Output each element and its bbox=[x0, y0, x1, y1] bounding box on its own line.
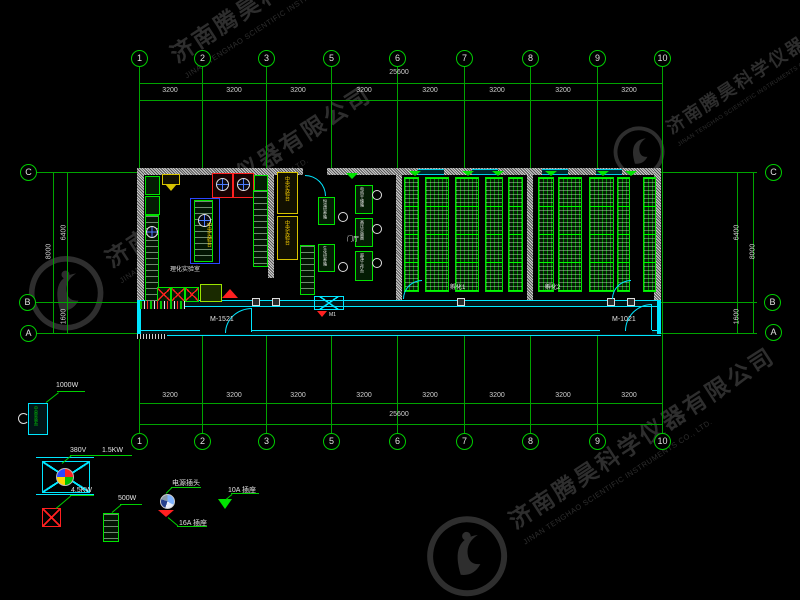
grid-bubble-top-5: 5 bbox=[323, 50, 340, 67]
door-arc bbox=[612, 280, 631, 299]
legend-c-clip-icon bbox=[18, 413, 29, 424]
room-label-hall: 门厅 bbox=[347, 234, 359, 243]
leader-line bbox=[57, 391, 85, 392]
dim-bay: 3200 bbox=[416, 87, 444, 94]
wall-right-lower bbox=[657, 300, 661, 334]
equipment-label: 生化培养箱 bbox=[323, 246, 327, 268]
lab-cabinet bbox=[145, 196, 160, 215]
door-leaf bbox=[251, 308, 252, 332]
equipment-label: 电热干燥箱 bbox=[360, 187, 364, 210]
cable-tray bbox=[140, 301, 185, 309]
exhaust-fan-icon bbox=[165, 184, 177, 191]
grid-bubble-top-8: 8 bbox=[522, 50, 539, 67]
watermark-top-right: 济南腾昊科学仪器有限公司 JINAN TENGHAO SCIENTIFIC IN… bbox=[601, 0, 800, 190]
wall-partition-rooms bbox=[527, 175, 533, 300]
room-label-hatch2: 孵化2 bbox=[545, 282, 560, 291]
dim-total-bottom: 25600 bbox=[379, 411, 419, 418]
lab-side-bench bbox=[253, 190, 268, 267]
door-label-m1521: M-1521 bbox=[210, 316, 234, 323]
door-label-m1: M1 bbox=[329, 312, 336, 318]
grid-bubble-bottom-8: 8 bbox=[522, 433, 539, 450]
dim-bay: 3200 bbox=[483, 87, 511, 94]
lab-equipment-box bbox=[157, 287, 171, 302]
legend-rack-symbol bbox=[103, 513, 119, 542]
dim-side-upper: 6400 bbox=[734, 218, 741, 248]
dim-bay: 3200 bbox=[350, 392, 378, 399]
column-marker bbox=[252, 298, 260, 306]
legend-socket16-label: 16A 插座 bbox=[179, 518, 207, 528]
incubator-rack bbox=[508, 177, 523, 292]
equipment-label: 恒温培养箱 bbox=[323, 199, 327, 221]
incubator-rack bbox=[455, 177, 479, 292]
dim-bay: 3200 bbox=[284, 392, 312, 399]
stool bbox=[372, 258, 382, 268]
grid-bubble-top-9: 9 bbox=[589, 50, 606, 67]
grid-bubble-bottom-2: 2 bbox=[194, 433, 211, 450]
grid-bubble-top-3: 3 bbox=[258, 50, 275, 67]
leader-line bbox=[120, 504, 142, 505]
leader-line bbox=[70, 455, 132, 456]
equipment-label: 超净工作台 bbox=[360, 253, 364, 277]
legend-plug-ball-icon bbox=[160, 494, 175, 509]
legend-socket16-icon bbox=[158, 510, 174, 517]
dim-line bbox=[139, 403, 662, 404]
dim-bay: 3200 bbox=[156, 392, 184, 399]
incubator-rack bbox=[404, 177, 419, 292]
incubator-rack bbox=[643, 177, 656, 292]
dim-side-total: 8000 bbox=[46, 237, 53, 267]
equipment-label: 高压灭菌器 bbox=[360, 220, 364, 243]
title-tick-strip bbox=[137, 334, 167, 339]
dim-bay: 3200 bbox=[615, 87, 643, 94]
incubator-rack bbox=[589, 177, 614, 292]
lab-cabinet bbox=[145, 176, 160, 195]
stool bbox=[372, 190, 382, 200]
central-bench-label: 中央实验台 bbox=[284, 176, 289, 208]
lab-machine bbox=[200, 284, 222, 302]
column-marker bbox=[627, 298, 635, 306]
legend-motor-icon bbox=[56, 468, 74, 486]
red-cone bbox=[222, 289, 238, 298]
room-label-lab: 理化实验室 bbox=[170, 264, 200, 273]
fan-icon bbox=[237, 178, 250, 191]
dim-side-total: 8000 bbox=[750, 237, 757, 267]
grid-bubble-top-7: 7 bbox=[456, 50, 473, 67]
dim-total-top: 25600 bbox=[379, 69, 419, 76]
stool bbox=[372, 224, 382, 234]
lab-equipment-box bbox=[185, 287, 199, 302]
central-bench-label: 中央实验台 bbox=[206, 222, 211, 260]
watermark-bottom-right: 济南腾昊科学仪器有限公司 JINAN TENGHAO SCIENTIFIC IN… bbox=[408, 320, 799, 600]
vestibule-door bbox=[314, 296, 344, 310]
grid-bubble-left-B: B bbox=[19, 294, 36, 311]
vent-icon bbox=[409, 171, 421, 176]
incubator-rack bbox=[617, 177, 630, 292]
grid-bubble-top-2: 2 bbox=[194, 50, 211, 67]
column-marker bbox=[272, 298, 280, 306]
grid-bubble-bottom-7: 7 bbox=[456, 433, 473, 450]
door-arc bbox=[305, 175, 326, 196]
incubator-rack bbox=[558, 177, 582, 292]
dim-bay: 3200 bbox=[350, 87, 378, 94]
window bbox=[418, 169, 444, 175]
grid-bubble-right-A: A bbox=[765, 324, 782, 341]
grid-bubble-right-B: B bbox=[764, 294, 781, 311]
watermark-company-cn: 济南腾昊科学仪器有限公司 bbox=[500, 337, 780, 535]
dim-bay: 3200 bbox=[483, 392, 511, 399]
legend-socket10-icon bbox=[218, 499, 232, 509]
leader-line bbox=[168, 517, 179, 526]
dim-side-upper: 6400 bbox=[61, 218, 68, 248]
legend-power-500w: 500W bbox=[118, 495, 136, 502]
vent-icon bbox=[625, 171, 637, 176]
grid-bubble-left-A: A bbox=[20, 325, 37, 342]
leader-line bbox=[56, 496, 71, 509]
grid-bubble-bottom-10: 10 bbox=[654, 433, 671, 450]
legend-red-equipment bbox=[42, 508, 61, 527]
legend-fan-flare bbox=[36, 457, 94, 458]
dim-bay: 3200 bbox=[549, 87, 577, 94]
grid-bubble-right-C: C bbox=[765, 164, 782, 181]
vent-icon bbox=[462, 171, 474, 176]
legend-power-45kw: 4.5KW bbox=[71, 487, 92, 494]
dim-bay: 3200 bbox=[416, 392, 444, 399]
legend-plug-label: 电源插头 bbox=[172, 478, 200, 488]
dim-bay: 3200 bbox=[156, 87, 184, 94]
column-marker bbox=[457, 298, 465, 306]
legend-voltage-380v: 380V bbox=[70, 447, 86, 454]
dim-side-lower: 1600 bbox=[734, 302, 741, 332]
dim-line bbox=[139, 424, 662, 425]
room-label-hatch1: 孵化1 bbox=[450, 282, 465, 291]
dim-bay: 3200 bbox=[615, 392, 643, 399]
grid-bubble-bottom-3: 3 bbox=[258, 433, 275, 450]
door-label-m1021: M-1021 bbox=[612, 316, 636, 323]
legend-cabinet-label: 中央实验台 bbox=[34, 406, 38, 431]
vent-icon bbox=[492, 171, 504, 176]
building-plan: 中央实验台 中央实验台 中央实验台 理化实验室 恒温培养箱 生化培养箱 电热干燥… bbox=[137, 168, 661, 334]
grid-bubble-bottom-1: 1 bbox=[131, 433, 148, 450]
dim-line bbox=[53, 172, 54, 333]
grid-bubble-left-C: C bbox=[20, 164, 37, 181]
incubator-rack bbox=[425, 177, 449, 292]
incubator-rack bbox=[538, 177, 554, 292]
dim-side-lower: 1600 bbox=[61, 302, 68, 332]
stool bbox=[338, 262, 348, 272]
dim-bay: 3200 bbox=[220, 392, 248, 399]
door-leaf bbox=[651, 304, 652, 330]
legend-power-15kw: 1.5KW bbox=[102, 447, 123, 454]
door-opening bbox=[303, 168, 327, 175]
grid-bubble-bottom-9: 9 bbox=[589, 433, 606, 450]
watermark-company-cn: 济南腾昊科学仪器有限公司 bbox=[660, 0, 800, 139]
grid-bubble-bottom-5: 5 bbox=[323, 433, 340, 450]
dim-bay: 3200 bbox=[549, 392, 577, 399]
hall-cabinet bbox=[300, 245, 315, 295]
fan-icon bbox=[146, 226, 158, 238]
fan-icon bbox=[216, 178, 229, 191]
dim-line bbox=[139, 83, 662, 84]
wall-partition-lab bbox=[268, 175, 274, 278]
leader-line bbox=[70, 495, 94, 496]
grid-bubble-top-6: 6 bbox=[389, 50, 406, 67]
lab-equipment-box bbox=[171, 287, 185, 302]
grid-bubble-top-10: 10 bbox=[654, 50, 671, 67]
incubator-rack bbox=[485, 177, 503, 292]
column-marker bbox=[607, 298, 615, 306]
vent-icon bbox=[597, 171, 609, 176]
stool bbox=[338, 212, 348, 222]
ceiling-fan-icon bbox=[346, 173, 358, 179]
vent-icon bbox=[545, 171, 557, 176]
grid-bubble-bottom-6: 6 bbox=[389, 433, 406, 450]
central-bench-label: 中央实验台 bbox=[284, 220, 289, 254]
red-marker bbox=[317, 311, 327, 317]
wall-partition-hall bbox=[396, 175, 402, 300]
legend-socket10-label: 10A 插座 bbox=[228, 485, 256, 495]
leader-line bbox=[112, 504, 122, 512]
leader-line bbox=[46, 392, 59, 403]
legend-power-1000w: 1000W bbox=[56, 382, 78, 389]
wall-left bbox=[137, 168, 144, 305]
dim-bay: 3200 bbox=[220, 87, 248, 94]
dim-bay: 3200 bbox=[284, 87, 312, 94]
cad-drawing-canvas: 济南腾昊科学仪器有限公司 JINAN TENGHAO SCIENTIFIC IN… bbox=[0, 0, 800, 600]
gridline-10 bbox=[662, 66, 663, 433]
dim-line bbox=[139, 100, 662, 101]
grid-bubble-top-1: 1 bbox=[131, 50, 148, 67]
